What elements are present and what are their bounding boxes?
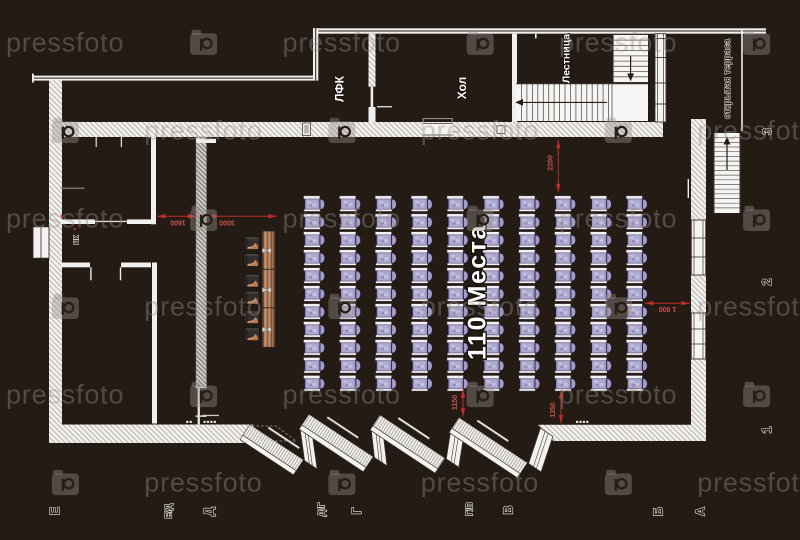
svg-text:Д/Г: Д/Г [316,502,326,516]
svg-text:2200: 2200 [548,155,555,171]
svg-text:pressfoto: pressfoto [697,115,800,145]
svg-text:1: 1 [760,426,774,433]
svg-text:pressfoto: pressfoto [421,291,539,321]
svg-text:pressfoto: pressfoto [559,380,677,410]
svg-text:Г/В: Г/В [464,501,474,516]
svg-text:ЛФК: ЛФК [333,75,347,102]
svg-text:pressfoto: pressfoto [559,27,677,57]
svg-text:pressfoto: pressfoto [6,203,124,233]
svg-text:pressfoto: pressfoto [559,203,677,233]
svg-text:открытая терраса: открытая терраса [722,38,732,119]
svg-text:pressfoto: pressfoto [6,380,124,410]
svg-text:pressfoto: pressfoto [697,291,800,321]
svg-text:pressfoto: pressfoto [421,115,539,145]
svg-text:pressfoto: pressfoto [6,27,124,57]
svg-text:pressfoto: pressfoto [421,468,539,498]
svg-text:1 800: 1 800 [659,305,677,312]
svg-text:В: В [501,505,515,514]
svg-text:pressfoto: pressfoto [283,27,401,57]
svg-text:2: 2 [760,278,774,285]
svg-text:Г: Г [350,507,364,514]
svg-text:pressfoto: pressfoto [144,115,262,145]
svg-text:pressfoto: pressfoto [697,468,800,498]
svg-text:1350: 1350 [550,402,557,418]
svg-text:Б: Б [651,507,665,516]
svg-text:pressfoto: pressfoto [144,468,262,498]
svg-text:1600: 1600 [170,218,186,225]
svg-text:3000: 3000 [219,218,235,225]
svg-text:1150: 1150 [452,395,459,410]
svg-text:А: А [693,507,707,516]
svg-text:pressfoto: pressfoto [283,203,401,233]
svg-text:ПК: ПК [73,235,80,245]
svg-text:pressfoto: pressfoto [283,380,401,410]
svg-text:Хол: Хол [455,77,469,100]
svg-text:Е: Е [48,507,62,515]
svg-text:Д: Д [202,507,216,516]
svg-text:Е/Д: Е/Д [163,503,173,519]
svg-text:pressfoto: pressfoto [144,291,262,321]
